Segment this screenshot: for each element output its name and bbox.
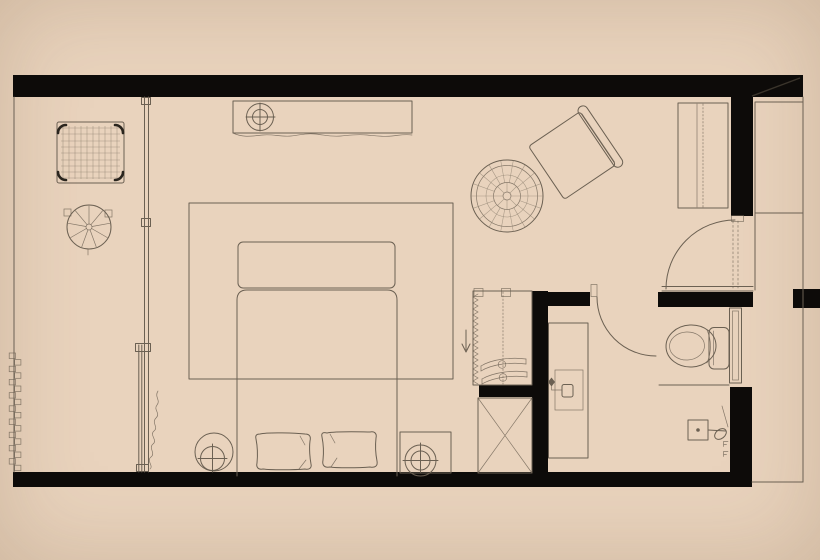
hanger-icon — [482, 371, 527, 384]
wall-entry-pier — [731, 97, 753, 216]
wall-corridor-stub — [793, 289, 820, 308]
pillow — [322, 432, 377, 468]
wicker-armchair — [57, 122, 124, 183]
shower-glass-screen — [730, 308, 742, 383]
bedside-lamp-left — [195, 433, 233, 472]
wall-dressing-divider — [532, 291, 548, 487]
foot-bench — [238, 242, 395, 288]
luggage-shaft — [478, 398, 532, 473]
hanger-icon — [481, 358, 526, 371]
faucet-icon — [548, 378, 555, 387]
sink-basin — [562, 385, 573, 398]
walls — [13, 75, 820, 487]
direction-arrow-icon — [462, 330, 470, 352]
wall-bath-top-right — [658, 292, 753, 307]
desk-lamp-icon — [246, 103, 275, 131]
nightstand-right — [400, 432, 451, 476]
curtain-squiggle — [149, 391, 158, 469]
door-swing-arc — [666, 220, 735, 289]
area-rug — [189, 203, 453, 379]
armrest-bracket — [115, 125, 123, 133]
toilet — [665, 324, 729, 369]
floor-plan-canvas — [0, 0, 820, 560]
door-leaf — [591, 285, 597, 297]
round-woven-pouf — [471, 160, 543, 232]
left-wall-square-strip — [9, 353, 21, 471]
round-side-table — [64, 205, 112, 255]
wall-top — [13, 75, 803, 97]
shower-head-icon — [713, 426, 729, 441]
bed-outline — [237, 290, 397, 476]
mullion-bracket — [142, 219, 151, 227]
bathroom-door — [591, 285, 656, 357]
hinge-plate — [732, 216, 744, 222]
entry-alcove — [755, 102, 803, 213]
lounge-chair — [526, 104, 624, 203]
exterior-lines — [14, 97, 803, 482]
wardrobe-top-right — [678, 103, 728, 208]
entry-door — [666, 216, 744, 290]
wall-vanity-divider — [479, 385, 532, 397]
console-desk — [233, 101, 412, 136]
wall-bottom — [13, 472, 752, 487]
window-partition — [136, 97, 159, 472]
wall-bath-top-left — [548, 292, 590, 306]
bed-group — [237, 242, 397, 476]
armrest-bracket — [115, 172, 123, 180]
vanity-sink — [548, 323, 588, 458]
shower-set — [688, 406, 728, 457]
door-swing-arc — [597, 297, 656, 356]
armrest-bracket — [58, 125, 66, 133]
armrest-bracket — [58, 172, 66, 180]
floor-plan-drawing — [0, 0, 820, 560]
open-closet — [473, 289, 532, 386]
mullion-bracket — [142, 98, 151, 105]
